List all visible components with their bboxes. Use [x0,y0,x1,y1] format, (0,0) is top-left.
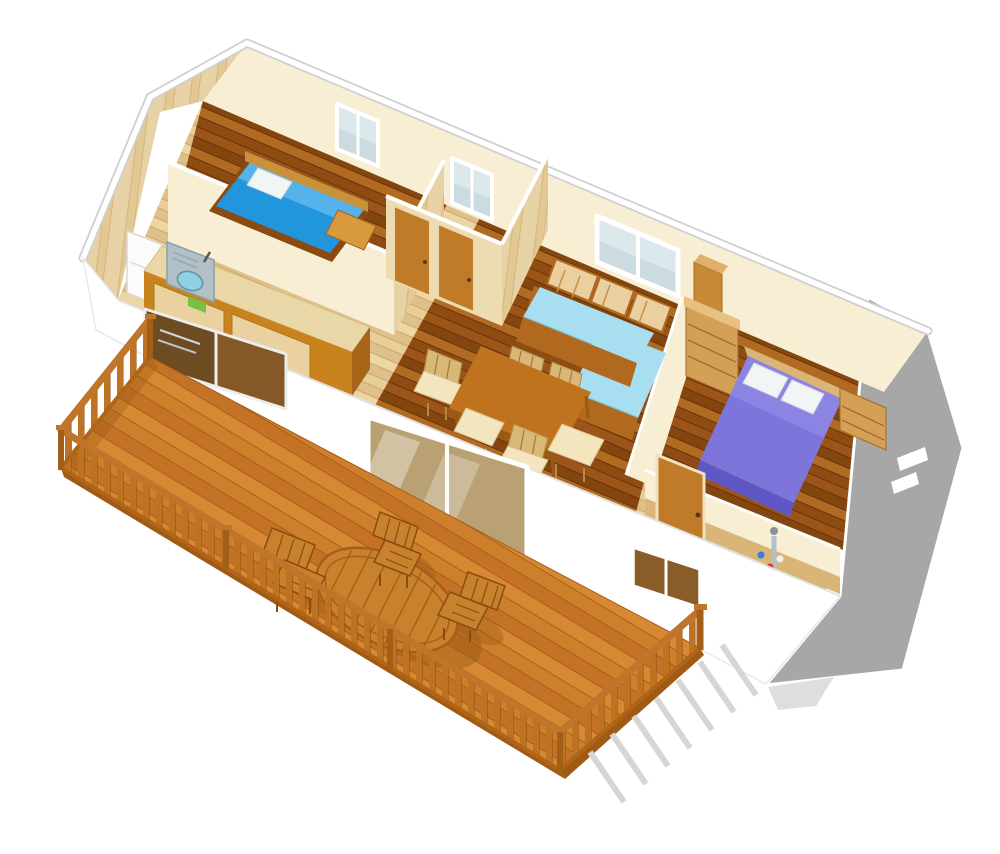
railing-shadow-stripe [678,680,712,730]
floorplan-3d-render [0,0,1000,854]
post-cap [385,624,396,629]
bathroom-door [438,224,474,312]
railing-shadow-stripe [590,752,624,802]
door-knob [423,260,427,264]
post-cap [221,525,232,530]
table-leg [586,396,588,418]
railing-shadow-stripe [656,698,690,748]
bottle-white [777,556,784,563]
railing-shadow-stripe [700,662,734,712]
post-cap [56,425,67,430]
post-cap [694,604,707,610]
post-cap [555,727,566,732]
door-knob [467,278,471,282]
wc-door [394,206,430,296]
shower-head [770,527,778,535]
railing-shadow-stripe [634,716,668,766]
railing-shadow-stripe [612,734,646,784]
door-knob [696,513,701,518]
render-canvas [0,0,1000,854]
bottle-blue [758,552,765,559]
table-leg [552,456,554,478]
post-cap [145,314,156,319]
